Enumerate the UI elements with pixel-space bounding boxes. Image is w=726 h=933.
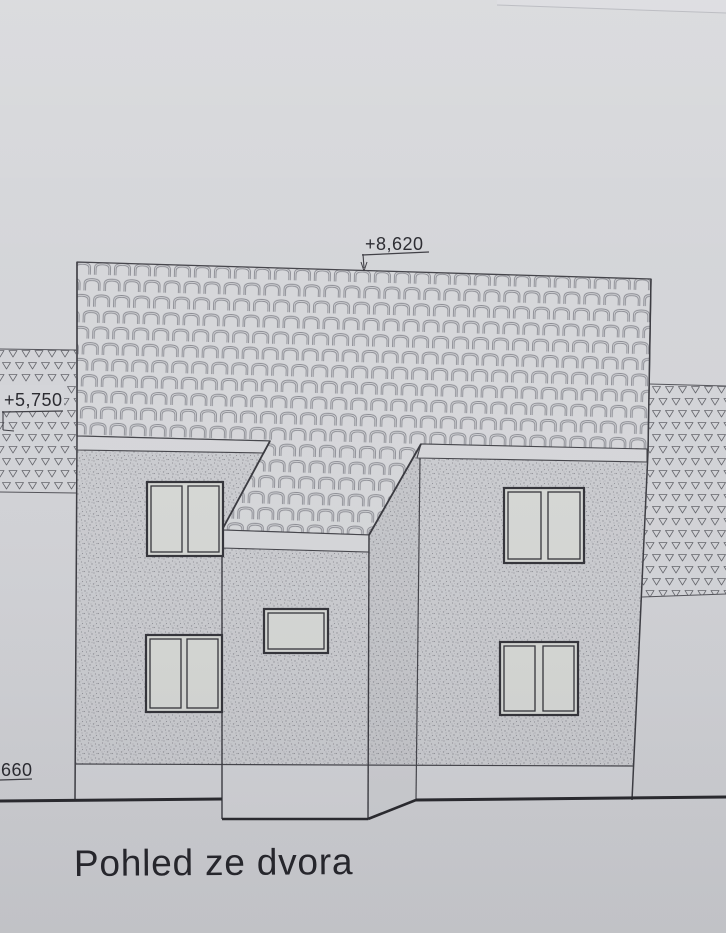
window-bay: [264, 609, 328, 653]
drawing-title: Pohled ze dvora: [74, 841, 354, 884]
ridge-level-label: +8,620: [365, 234, 424, 254]
neighbor-wall-right-hatch: [642, 384, 726, 597]
window-upper-left: [147, 482, 223, 556]
neighbor-wall-left-hatch: [0, 349, 76, 493]
window-lower-right: [500, 642, 578, 715]
window-lower-left: [146, 635, 222, 712]
window-upper-right: [504, 488, 584, 563]
base-level-label: 660: [1, 760, 33, 780]
level-mark-base: 660: [0, 760, 33, 780]
left-level-label: +5,750: [4, 390, 63, 410]
elevation-drawing: +8,620 +5,750 660 Pohled ze dvora: [0, 0, 726, 933]
photographed-drawing: +8,620 +5,750 660 Pohled ze dvora: [0, 0, 726, 933]
